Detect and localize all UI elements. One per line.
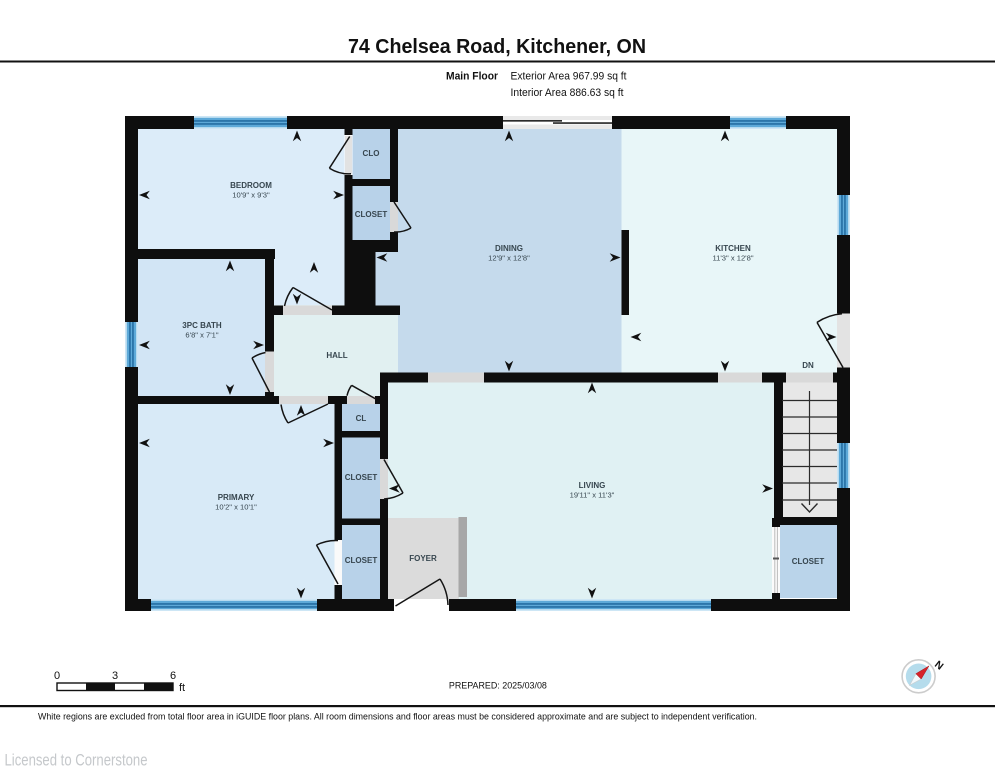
svg-text:PRIMARY: PRIMARY: [218, 493, 255, 502]
svg-text:0: 0: [54, 670, 60, 682]
svg-text:CLO: CLO: [363, 149, 380, 158]
svg-text:CLOSET: CLOSET: [345, 473, 378, 482]
svg-text:3: 3: [112, 670, 118, 682]
svg-text:BEDROOM: BEDROOM: [230, 181, 272, 190]
svg-text:CLOSET: CLOSET: [355, 210, 388, 219]
svg-text:10'9" x 9'3": 10'9" x 9'3": [232, 191, 270, 200]
svg-text:HALL: HALL: [326, 351, 347, 360]
svg-text:Licensed to Cornerstone: Licensed to Cornerstone: [5, 751, 148, 768]
svg-text:12'9" x 12'8": 12'9" x 12'8": [488, 254, 530, 263]
svg-text:KITCHEN: KITCHEN: [715, 244, 751, 253]
svg-text:CL: CL: [356, 414, 367, 423]
svg-text:CLOSET: CLOSET: [345, 556, 378, 565]
svg-text:FOYER: FOYER: [409, 554, 437, 563]
svg-text:10'2" x 10'1": 10'2" x 10'1": [215, 503, 257, 512]
svg-text:White regions are excluded fro: White regions are excluded from total fl…: [38, 712, 757, 722]
svg-text:19'11" x 11'3": 19'11" x 11'3": [570, 491, 615, 500]
svg-text:Exterior Area 967.99 sq ft: Exterior Area 967.99 sq ft: [511, 71, 628, 83]
svg-text:DINING: DINING: [495, 244, 523, 253]
svg-text:Interior Area 886.63 sq ft: Interior Area 886.63 sq ft: [511, 87, 625, 99]
svg-text:PREPARED: 2025/03/08: PREPARED: 2025/03/08: [449, 681, 547, 691]
svg-text:Main Floor: Main Floor: [446, 71, 499, 83]
svg-text:3PC BATH: 3PC BATH: [182, 321, 222, 330]
svg-text:6'8" x 7'1": 6'8" x 7'1": [185, 331, 219, 340]
svg-text:6: 6: [170, 670, 176, 682]
svg-text:LIVING: LIVING: [579, 481, 606, 490]
svg-text:DN: DN: [802, 361, 814, 370]
svg-text:11'3" x 12'8": 11'3" x 12'8": [712, 254, 753, 263]
svg-text:74 Chelsea Road, Kitchener, ON: 74 Chelsea Road, Kitchener, ON: [348, 36, 646, 58]
svg-text:ft: ft: [179, 682, 185, 694]
svg-text:CLOSET: CLOSET: [792, 557, 825, 566]
